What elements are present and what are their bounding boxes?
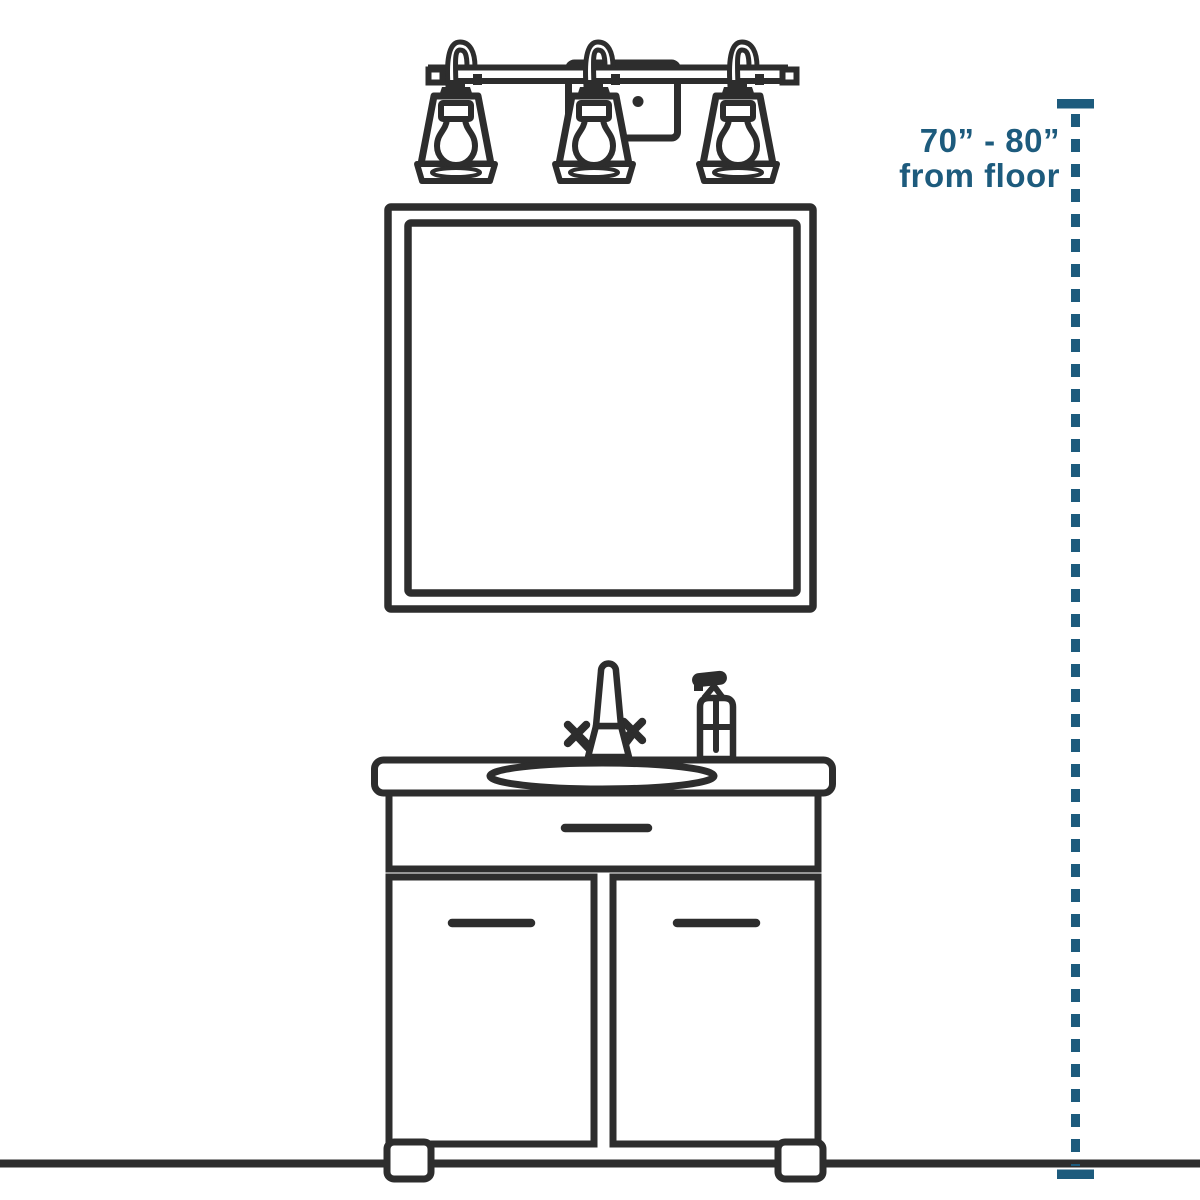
measurement-cap-top (1057, 99, 1094, 109)
lamp-right (699, 42, 777, 181)
three-light-vanity-fixture (417, 42, 797, 181)
wall-mirror (388, 207, 813, 609)
diagram-canvas: 70” - 80” from floor (0, 0, 1200, 1200)
measurement-label: 70” - 80” from floor (899, 123, 1060, 193)
vanity-door-right (613, 877, 818, 1144)
sink-basin (490, 763, 714, 789)
soap-pump-nozzle (694, 682, 703, 691)
vanity-foot-right (778, 1142, 823, 1179)
height-measurement-guide (1057, 99, 1094, 1179)
soap-pump-bottle (691, 670, 733, 759)
vanity-door-left (389, 877, 594, 1144)
faucet-with-cross-handles (568, 664, 642, 757)
mounting-plate-screw (633, 96, 644, 107)
measurement-cap-bottom (1057, 1170, 1094, 1180)
measurement-range-text: 70” - 80” (899, 123, 1060, 158)
fixture-bar-end-right (783, 70, 797, 83)
measurement-reference-text: from floor (899, 158, 1060, 193)
fixture-bar-end-left (429, 70, 443, 83)
faucet-base (588, 726, 629, 757)
vanity-foot-left (387, 1142, 431, 1179)
lamp-left (417, 42, 495, 181)
vanity-cabinet (375, 760, 833, 1179)
faucet-spout (596, 664, 621, 726)
mirror-inner-frame (408, 223, 797, 593)
